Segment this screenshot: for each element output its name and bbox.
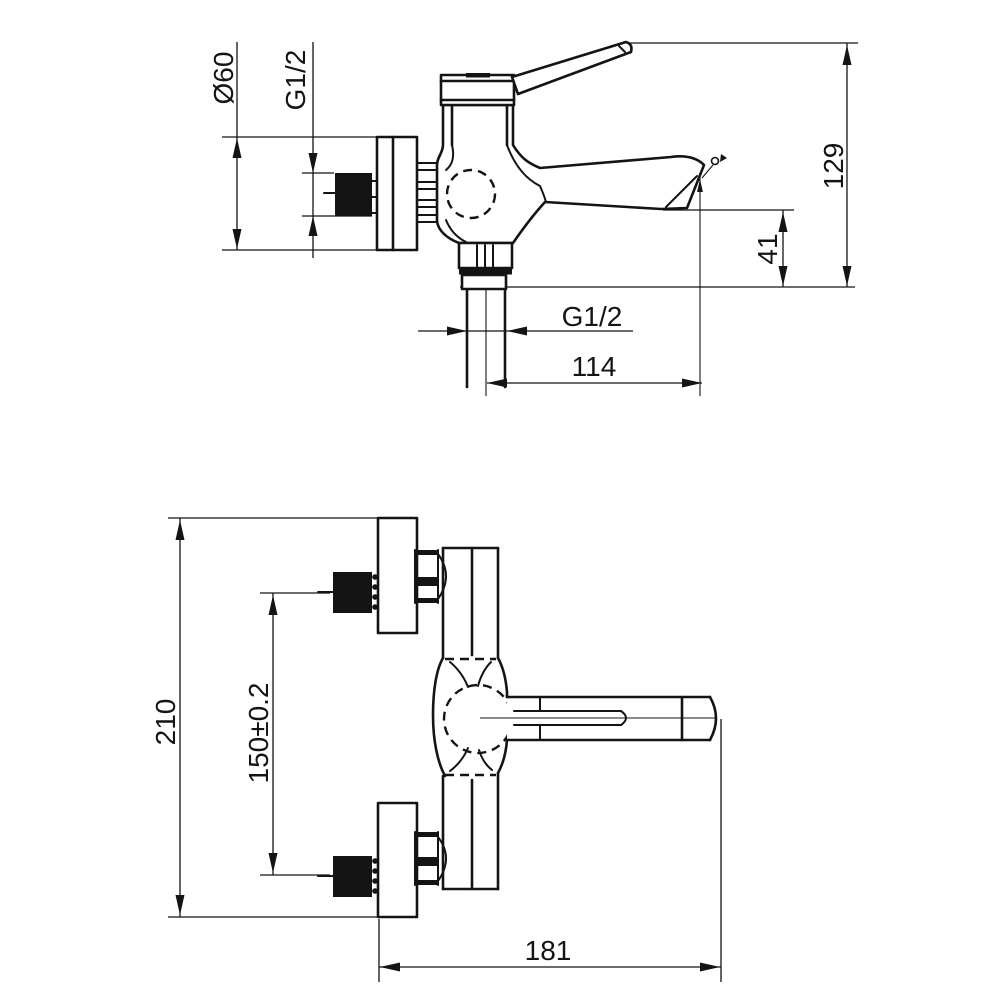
- wall-flange: [378, 803, 417, 917]
- dim-label-overall-height: 210: [150, 699, 181, 746]
- dim-label-overall-height: 129: [818, 143, 849, 190]
- side-view: Ø60 G1/2 129 41 G1/2 114: [208, 42, 858, 396]
- dim-arrow: [779, 212, 788, 232]
- web-curve: [478, 662, 491, 686]
- cap-index-marker: [466, 73, 490, 78]
- technical-drawing-page: Ø60 G1/2 129 41 G1/2 114: [0, 0, 1000, 1000]
- dim-label-spout-outlet-height: 41: [752, 233, 783, 264]
- body-outline: [437, 105, 704, 243]
- dim-arrow: [843, 266, 852, 286]
- faucet-body-front: [433, 548, 717, 889]
- dim-arrow: [309, 216, 318, 236]
- dim-label-overall-depth: 181: [525, 935, 572, 966]
- dim-arrow: [682, 379, 702, 388]
- wall-flange: [378, 518, 417, 633]
- cartridge-circle: [444, 685, 512, 753]
- dim-arrow: [176, 520, 185, 540]
- dim-arrow: [269, 853, 278, 873]
- union-nut: [415, 832, 446, 885]
- side-view-dimension-lines: [222, 42, 858, 396]
- dim-label-flange-diameter: Ø60: [208, 52, 239, 105]
- wall-seal: [333, 856, 372, 897]
- dim-arrow: [779, 266, 788, 286]
- dim-arrow: [447, 327, 467, 336]
- dim-arrow: [507, 327, 527, 336]
- wall-flange: [377, 137, 417, 250]
- lower-wall-connection: [318, 803, 446, 917]
- dim-label-spout-reach: 114: [572, 351, 617, 382]
- wall-mount-assembly: [324, 137, 450, 250]
- dim-arrow: [843, 45, 852, 65]
- body-bulge: [498, 740, 507, 773]
- web-curve: [450, 662, 468, 687]
- dim-arrow: [176, 895, 185, 915]
- dim-arrow: [233, 229, 242, 249]
- union-nut: [415, 550, 446, 603]
- dim-label-inlet-spacing: 150±0.2: [243, 682, 274, 783]
- dim-arrow: [700, 963, 720, 972]
- front-view: 210 150±0.2 181: [150, 518, 721, 982]
- wall-seal: [333, 572, 372, 613]
- faucet-body-side: [437, 42, 727, 243]
- outlet-seal-band: [459, 268, 512, 275]
- upper-wall-connection: [318, 518, 446, 633]
- dim-arrow: [380, 963, 400, 972]
- outlet-collar: [462, 275, 506, 289]
- spout-angle-marker: [702, 154, 727, 178]
- dim-label-wall-thread: G1/2: [280, 50, 311, 111]
- dim-label-outlet-thread: G1/2: [562, 301, 623, 332]
- dim-arrow: [233, 138, 242, 158]
- dim-arrow: [309, 153, 318, 173]
- faucet-technical-drawing: Ø60 G1/2 129 41 G1/2 114: [0, 0, 1000, 1000]
- dim-arrow: [269, 595, 278, 615]
- lever-handle: [512, 42, 631, 94]
- wall-seal: [335, 173, 372, 216]
- handle-arm: [480, 697, 717, 740]
